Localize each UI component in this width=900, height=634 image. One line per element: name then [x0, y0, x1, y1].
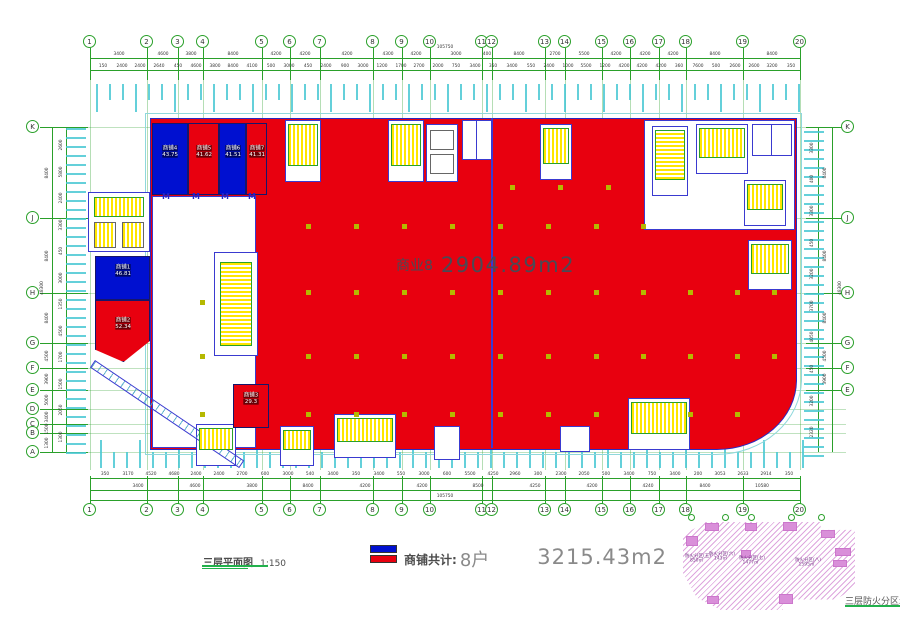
bubble-stem — [806, 127, 842, 128]
column-marker — [546, 290, 551, 295]
dimension-text: 8500 — [473, 484, 484, 489]
dimension-text: 2914 — [760, 472, 771, 477]
stair-treads — [337, 418, 393, 442]
witness-tick — [200, 84, 202, 100]
grid-bubble: J — [26, 211, 39, 224]
column-marker — [498, 412, 503, 417]
witness-tick — [66, 281, 86, 283]
column-marker — [354, 224, 359, 229]
column-marker — [772, 354, 777, 359]
blue-shop-swatch — [370, 545, 397, 553]
witness-tick — [804, 185, 824, 187]
dimension-text: 4500 — [823, 350, 828, 361]
shop-area: 52.34 — [115, 324, 130, 330]
bubble-stem — [90, 48, 91, 80]
dimension-text: 8400 — [823, 312, 828, 323]
witness-tick — [96, 84, 98, 112]
dimension-text: 4200 — [270, 52, 281, 57]
dimension-text: 3400 — [133, 484, 144, 489]
fire-grid-tick-bubble — [788, 514, 795, 521]
door-symbol: M — [192, 192, 200, 201]
dimension-text: 450 — [810, 365, 815, 373]
dimension-line — [90, 490, 800, 491]
dimension-text: 8400 — [766, 52, 777, 57]
dimension-text: 8400 — [45, 167, 50, 178]
column-marker — [200, 300, 205, 305]
dimension-text: 2320 — [810, 427, 815, 438]
witness-tick — [66, 218, 86, 220]
dimension-text: 4200 — [618, 64, 629, 69]
column-marker — [546, 354, 551, 359]
fire-zone-wall-block — [686, 536, 698, 546]
witness-tick — [694, 84, 696, 100]
column-marker — [546, 224, 551, 229]
stair-treads — [699, 128, 745, 158]
dimension-text: 1300 — [59, 431, 64, 442]
dimension-text: 4240 — [643, 484, 654, 489]
grid-bubble: 16 — [623, 503, 636, 516]
stair-treads — [751, 244, 789, 274]
witness-tick — [746, 84, 748, 100]
grid-bubble: B — [26, 426, 39, 439]
witness-tick — [776, 452, 778, 468]
dimension-text: 350 — [787, 64, 795, 69]
dimension-text: 450 — [304, 64, 312, 69]
witness-tick — [804, 203, 824, 205]
grid-bubble: G — [26, 336, 39, 349]
witness-tick — [343, 84, 345, 100]
witness-tick — [798, 84, 800, 112]
grid-bubble: 9 — [395, 35, 408, 48]
dimension-text: 3700 — [810, 300, 815, 311]
witness-tick — [421, 84, 423, 100]
dimension-text: 4500 — [59, 325, 64, 336]
witness-tick — [763, 440, 765, 468]
fire-zone-wall-block — [833, 560, 847, 567]
grid-bubble: 10 — [423, 35, 436, 48]
column-marker — [354, 290, 359, 295]
dimension-text: 3000 — [450, 52, 461, 57]
witness-tick — [213, 84, 215, 112]
column-marker — [606, 185, 611, 190]
witness-tick — [525, 84, 527, 112]
witness-tick — [66, 245, 86, 247]
column-marker — [641, 354, 646, 359]
column-marker — [558, 185, 563, 190]
grid-bubble: 8 — [366, 503, 379, 516]
bubble-stem — [40, 409, 88, 410]
dimension-line — [90, 58, 800, 59]
dimension-text: 3000 — [282, 472, 293, 477]
dimension-text: 540 — [306, 472, 314, 477]
column-marker — [641, 290, 646, 295]
dimension-text: 5500 — [578, 52, 589, 57]
shop-unit — [95, 300, 150, 362]
witness-tick — [804, 383, 824, 385]
dimension-text: 3800 — [246, 484, 257, 489]
bubble-stem — [203, 48, 204, 80]
witness-tick — [789, 452, 791, 468]
grid-bubble: 4 — [196, 35, 209, 48]
column-marker — [200, 354, 205, 359]
witness-tick — [66, 434, 86, 436]
grid-bubble: 3 — [171, 35, 184, 48]
witness-tick — [804, 257, 824, 259]
bubble-stem — [743, 48, 744, 80]
grid-bubble: H — [26, 286, 39, 299]
dimension-text: 7600 — [692, 64, 703, 69]
witness-tick — [66, 443, 86, 445]
service-room — [752, 124, 792, 156]
witness-tick — [804, 446, 824, 448]
dimension-text: 5500 — [464, 472, 475, 477]
witness-tick — [802, 440, 804, 468]
dimension-text: 4500 — [45, 350, 50, 361]
witness-tick — [804, 356, 824, 358]
witness-tick — [603, 84, 605, 112]
column-marker — [450, 412, 455, 417]
dimension-text: 4200 — [299, 52, 310, 57]
witness-tick — [66, 164, 86, 166]
column-marker — [594, 290, 599, 295]
fire-grid-tick-bubble — [748, 514, 755, 521]
dimension-text: 600 — [261, 472, 269, 477]
witness-tick — [551, 84, 553, 100]
dimension-text: 3900 — [823, 373, 828, 384]
column-marker — [450, 354, 455, 359]
bubble-stem — [800, 476, 801, 504]
grid-bubble: 10 — [423, 503, 436, 516]
dimension-text: 400 — [810, 175, 815, 183]
witness-tick — [66, 308, 86, 310]
witness-tick — [804, 374, 824, 376]
dimension-text: 360 — [675, 64, 683, 69]
stair-treads — [283, 430, 311, 450]
witness-tick — [460, 84, 462, 100]
dimension-text: 1700 — [395, 64, 406, 69]
witness-tick — [122, 84, 124, 100]
elevator-car — [122, 222, 144, 248]
grid-bubble: 19 — [736, 35, 749, 48]
legend-swatches — [370, 545, 397, 563]
witness-tick — [804, 347, 824, 349]
fire-zone-area: 850㎡ — [685, 559, 708, 564]
dimension-text: 8400 — [513, 52, 524, 57]
dimension-text: 2640 — [153, 64, 164, 69]
stair-treads — [747, 184, 783, 210]
witness-tick — [66, 344, 86, 346]
legend-shop-count: 8户 — [460, 546, 489, 572]
column-marker — [402, 290, 407, 295]
shop-unit — [152, 123, 188, 195]
witness-tick — [66, 272, 86, 274]
column-marker — [200, 412, 205, 417]
grid-bubble: D — [26, 402, 39, 415]
fire-zone-wall-block — [821, 530, 835, 538]
fire-caption-underline — [845, 605, 900, 607]
legend-total-area: 3215.43m2 — [537, 545, 667, 569]
dimension-text: 4200 — [341, 52, 352, 57]
shop-unit — [219, 123, 246, 195]
bubble-stem — [686, 48, 687, 80]
witness-tick — [317, 84, 319, 100]
witness-tick — [66, 362, 86, 364]
grid-bubble: 2 — [140, 503, 153, 516]
dimension-text: 4200 — [410, 52, 421, 57]
shop-unit — [188, 123, 219, 195]
witness-tick — [759, 84, 761, 112]
witness-tick — [66, 191, 86, 193]
dimension-text: 550 — [526, 64, 534, 69]
dimension-text: 550 — [397, 472, 405, 477]
witness-tick — [66, 254, 86, 256]
witness-tick — [148, 84, 150, 100]
dimension-text: 3000 — [59, 272, 64, 283]
witness-tick — [616, 84, 618, 100]
witness-tick — [330, 84, 332, 112]
dimension-text: 3400 — [328, 472, 339, 477]
fire-zone-wall-block — [779, 594, 793, 604]
witness-tick — [804, 158, 824, 160]
grid-bubble: 5 — [255, 35, 268, 48]
dimension-text: 4520 — [145, 472, 156, 477]
column-marker — [688, 354, 693, 359]
shop-name: 商铺6 — [225, 145, 240, 151]
column-marker — [306, 354, 311, 359]
grid-bubble: E — [841, 383, 854, 396]
dimension-text: 10580 — [755, 484, 769, 489]
dimension-text: 2400 — [544, 64, 555, 69]
grid-bubble: 6 — [283, 503, 296, 516]
dimension-text: 3200 — [810, 395, 815, 406]
column-marker — [498, 224, 503, 229]
grid-bubble: 14 — [558, 35, 571, 48]
dimension-text: 3000 — [284, 64, 295, 69]
grid-bubble: E — [26, 383, 39, 396]
dimension-text: 2050 — [578, 472, 589, 477]
shop-name: 商铺3 — [243, 392, 258, 398]
bubble-stem — [806, 343, 842, 344]
main-area-value: 2904.89m2 — [441, 254, 575, 277]
dimension-text: 3400 — [506, 64, 517, 69]
grid-bubble: 12 — [485, 503, 498, 516]
witness-tick — [590, 84, 592, 100]
dimension-line — [90, 478, 800, 479]
witness-tick — [356, 84, 358, 100]
escalator-treads — [220, 262, 252, 346]
dimension-text: 400 — [483, 52, 491, 57]
dimension-text: 3300 — [810, 205, 815, 216]
dimension-line — [90, 500, 800, 501]
witness-tick — [66, 209, 86, 211]
witness-tick — [66, 398, 86, 400]
witness-tick — [577, 84, 579, 100]
title-underline — [202, 565, 268, 567]
column-marker — [688, 412, 693, 417]
stair-treads — [199, 428, 233, 450]
dimension-text: 4680 — [168, 472, 179, 477]
witness-tick — [66, 425, 86, 427]
grid-bubble: 9 — [395, 503, 408, 516]
witness-tick — [707, 84, 709, 100]
column-marker — [510, 185, 515, 190]
dimension-text: 2300 — [555, 472, 566, 477]
legend-summary-label: 商铺共计: — [404, 551, 457, 568]
floor-plan-canvas: 商业8 2904.89m2 商铺共计: 8户 3215.43m2 三层平面图 1… — [0, 0, 900, 634]
grid-bubble: 5 — [255, 503, 268, 516]
dimension-text: 2600 — [59, 140, 64, 151]
dimension-text: 3170 — [123, 472, 134, 477]
witness-tick — [66, 389, 86, 391]
dimension-text: 500 — [712, 64, 720, 69]
grid-bubble: 20 — [793, 503, 806, 516]
dimension-text: 2633 — [738, 472, 749, 477]
witness-tick — [733, 84, 735, 100]
witness-tick — [804, 131, 824, 133]
grid-bubble: 1 — [83, 503, 96, 516]
dimension-text: 2700 — [414, 64, 425, 69]
witness-tick — [66, 227, 86, 229]
shop-name: 商铺4 — [162, 145, 177, 151]
column-marker — [641, 224, 646, 229]
dimension-text: 4100 — [246, 64, 257, 69]
column-marker — [402, 412, 407, 417]
dimension-text: 2400 — [321, 64, 332, 69]
fire-zone-wall-block — [745, 523, 757, 531]
room-partition — [476, 120, 477, 160]
witness-tick — [66, 452, 86, 454]
dimension-text: 1350 — [59, 299, 64, 310]
witness-tick — [785, 84, 787, 100]
dimension-text: 500 — [266, 64, 274, 69]
fire-zone-area: 1477㎡ — [739, 561, 762, 566]
witness-tick — [66, 380, 86, 382]
grid-bubble: H — [841, 286, 854, 299]
grid-bubble: 17 — [652, 503, 665, 516]
witness-tick — [100, 440, 102, 468]
dimension-text: 8400 — [228, 64, 239, 69]
fire-zone-wall-block — [835, 548, 851, 556]
shop-name: 商铺7 — [249, 145, 264, 151]
shop-area: 41.31 — [249, 152, 264, 158]
dimension-text: 600 — [443, 472, 451, 477]
witness-tick — [804, 284, 824, 286]
bubble-stem — [806, 390, 842, 391]
grid-bubble: 18 — [679, 35, 692, 48]
dimension-text: 2400 — [214, 472, 225, 477]
witness-tick — [66, 335, 86, 337]
dimension-text: 1500 — [59, 378, 64, 389]
dimension-text: 3800 — [209, 64, 220, 69]
witness-tick — [66, 317, 86, 319]
witness-tick — [187, 84, 189, 100]
grid-bubble: 6 — [283, 35, 296, 48]
dimension-text: 3400 — [45, 411, 50, 422]
dimension-text: 2000 — [432, 64, 443, 69]
bubble-stem — [40, 368, 88, 369]
witness-tick — [161, 84, 163, 100]
witness-tick — [804, 410, 824, 412]
column-marker — [688, 290, 693, 295]
grid-bubble: K — [26, 120, 39, 133]
stair-treads — [655, 130, 685, 180]
dimension-text: 2400 — [135, 64, 146, 69]
bubble-stem — [430, 48, 431, 80]
witness-tick — [408, 84, 410, 112]
grid-bubble: K — [841, 120, 854, 133]
witness-tick — [772, 84, 774, 100]
grid-bubble: 15 — [595, 35, 608, 48]
dimension-text: 3000 — [358, 64, 369, 69]
dimension-text: 4200 — [416, 484, 427, 489]
dimension-text: 3000 — [419, 472, 430, 477]
dimension-text: 1500 — [45, 423, 50, 434]
column-marker — [594, 412, 599, 417]
dimension-text: 350 — [784, 472, 792, 477]
witness-tick — [66, 200, 86, 202]
dimension-text: 150 — [99, 64, 107, 69]
witness-tick — [564, 84, 566, 112]
dimension-text: 4600 — [189, 484, 200, 489]
shop-unit — [246, 123, 267, 195]
column-marker — [306, 290, 311, 295]
elevator-car — [430, 130, 454, 150]
dimension-text: 8400 — [45, 250, 50, 261]
witness-tick — [66, 299, 86, 301]
door-symbol: M — [221, 192, 229, 201]
main-area-label: 商业8 2904.89m2 — [396, 254, 575, 277]
tenancy-divider-wall — [491, 118, 493, 448]
grid-bubble: 17 — [652, 35, 665, 48]
witness-tick — [66, 146, 86, 148]
dimension-text: 3053 — [715, 472, 726, 477]
column-marker — [735, 412, 740, 417]
column-marker — [306, 224, 311, 229]
bubble-stem — [800, 48, 801, 80]
dimension-text: 2600 — [729, 64, 740, 69]
witness-tick — [804, 194, 824, 196]
dimension-text: 3400 — [469, 64, 480, 69]
grid-bubble: 19 — [736, 503, 749, 516]
bubble-stem — [40, 293, 88, 294]
column-marker — [402, 354, 407, 359]
witness-tick — [66, 326, 86, 328]
stair-treads — [631, 402, 687, 434]
witness-tick — [804, 167, 824, 169]
dimension-text: 105750 — [437, 494, 454, 499]
dimension-text: 2400 — [59, 193, 64, 204]
witness-tick — [804, 140, 824, 142]
shop-unit — [95, 256, 150, 300]
fire-grid-tick-bubble — [722, 514, 729, 521]
fire-grid-tick-bubble — [818, 514, 825, 521]
dimension-text: 8400 — [823, 167, 828, 178]
dimension-text: 3800 — [185, 52, 196, 57]
dimension-text: 450 — [810, 238, 815, 246]
grid-bubble: 2 — [140, 35, 153, 48]
witness-tick — [434, 84, 436, 100]
column-marker — [498, 290, 503, 295]
dimension-text: 750 — [452, 64, 460, 69]
witness-tick — [804, 455, 824, 457]
column-marker — [546, 412, 551, 417]
shop-name: 商铺1 — [115, 264, 130, 270]
shop-legend: 商铺共计: 8户 3215.43m2 — [370, 545, 667, 572]
witness-tick — [804, 293, 824, 295]
shop-area: 43.75 — [162, 152, 177, 158]
shop-unit — [233, 384, 269, 428]
dimension-text: 8400 — [709, 52, 720, 57]
